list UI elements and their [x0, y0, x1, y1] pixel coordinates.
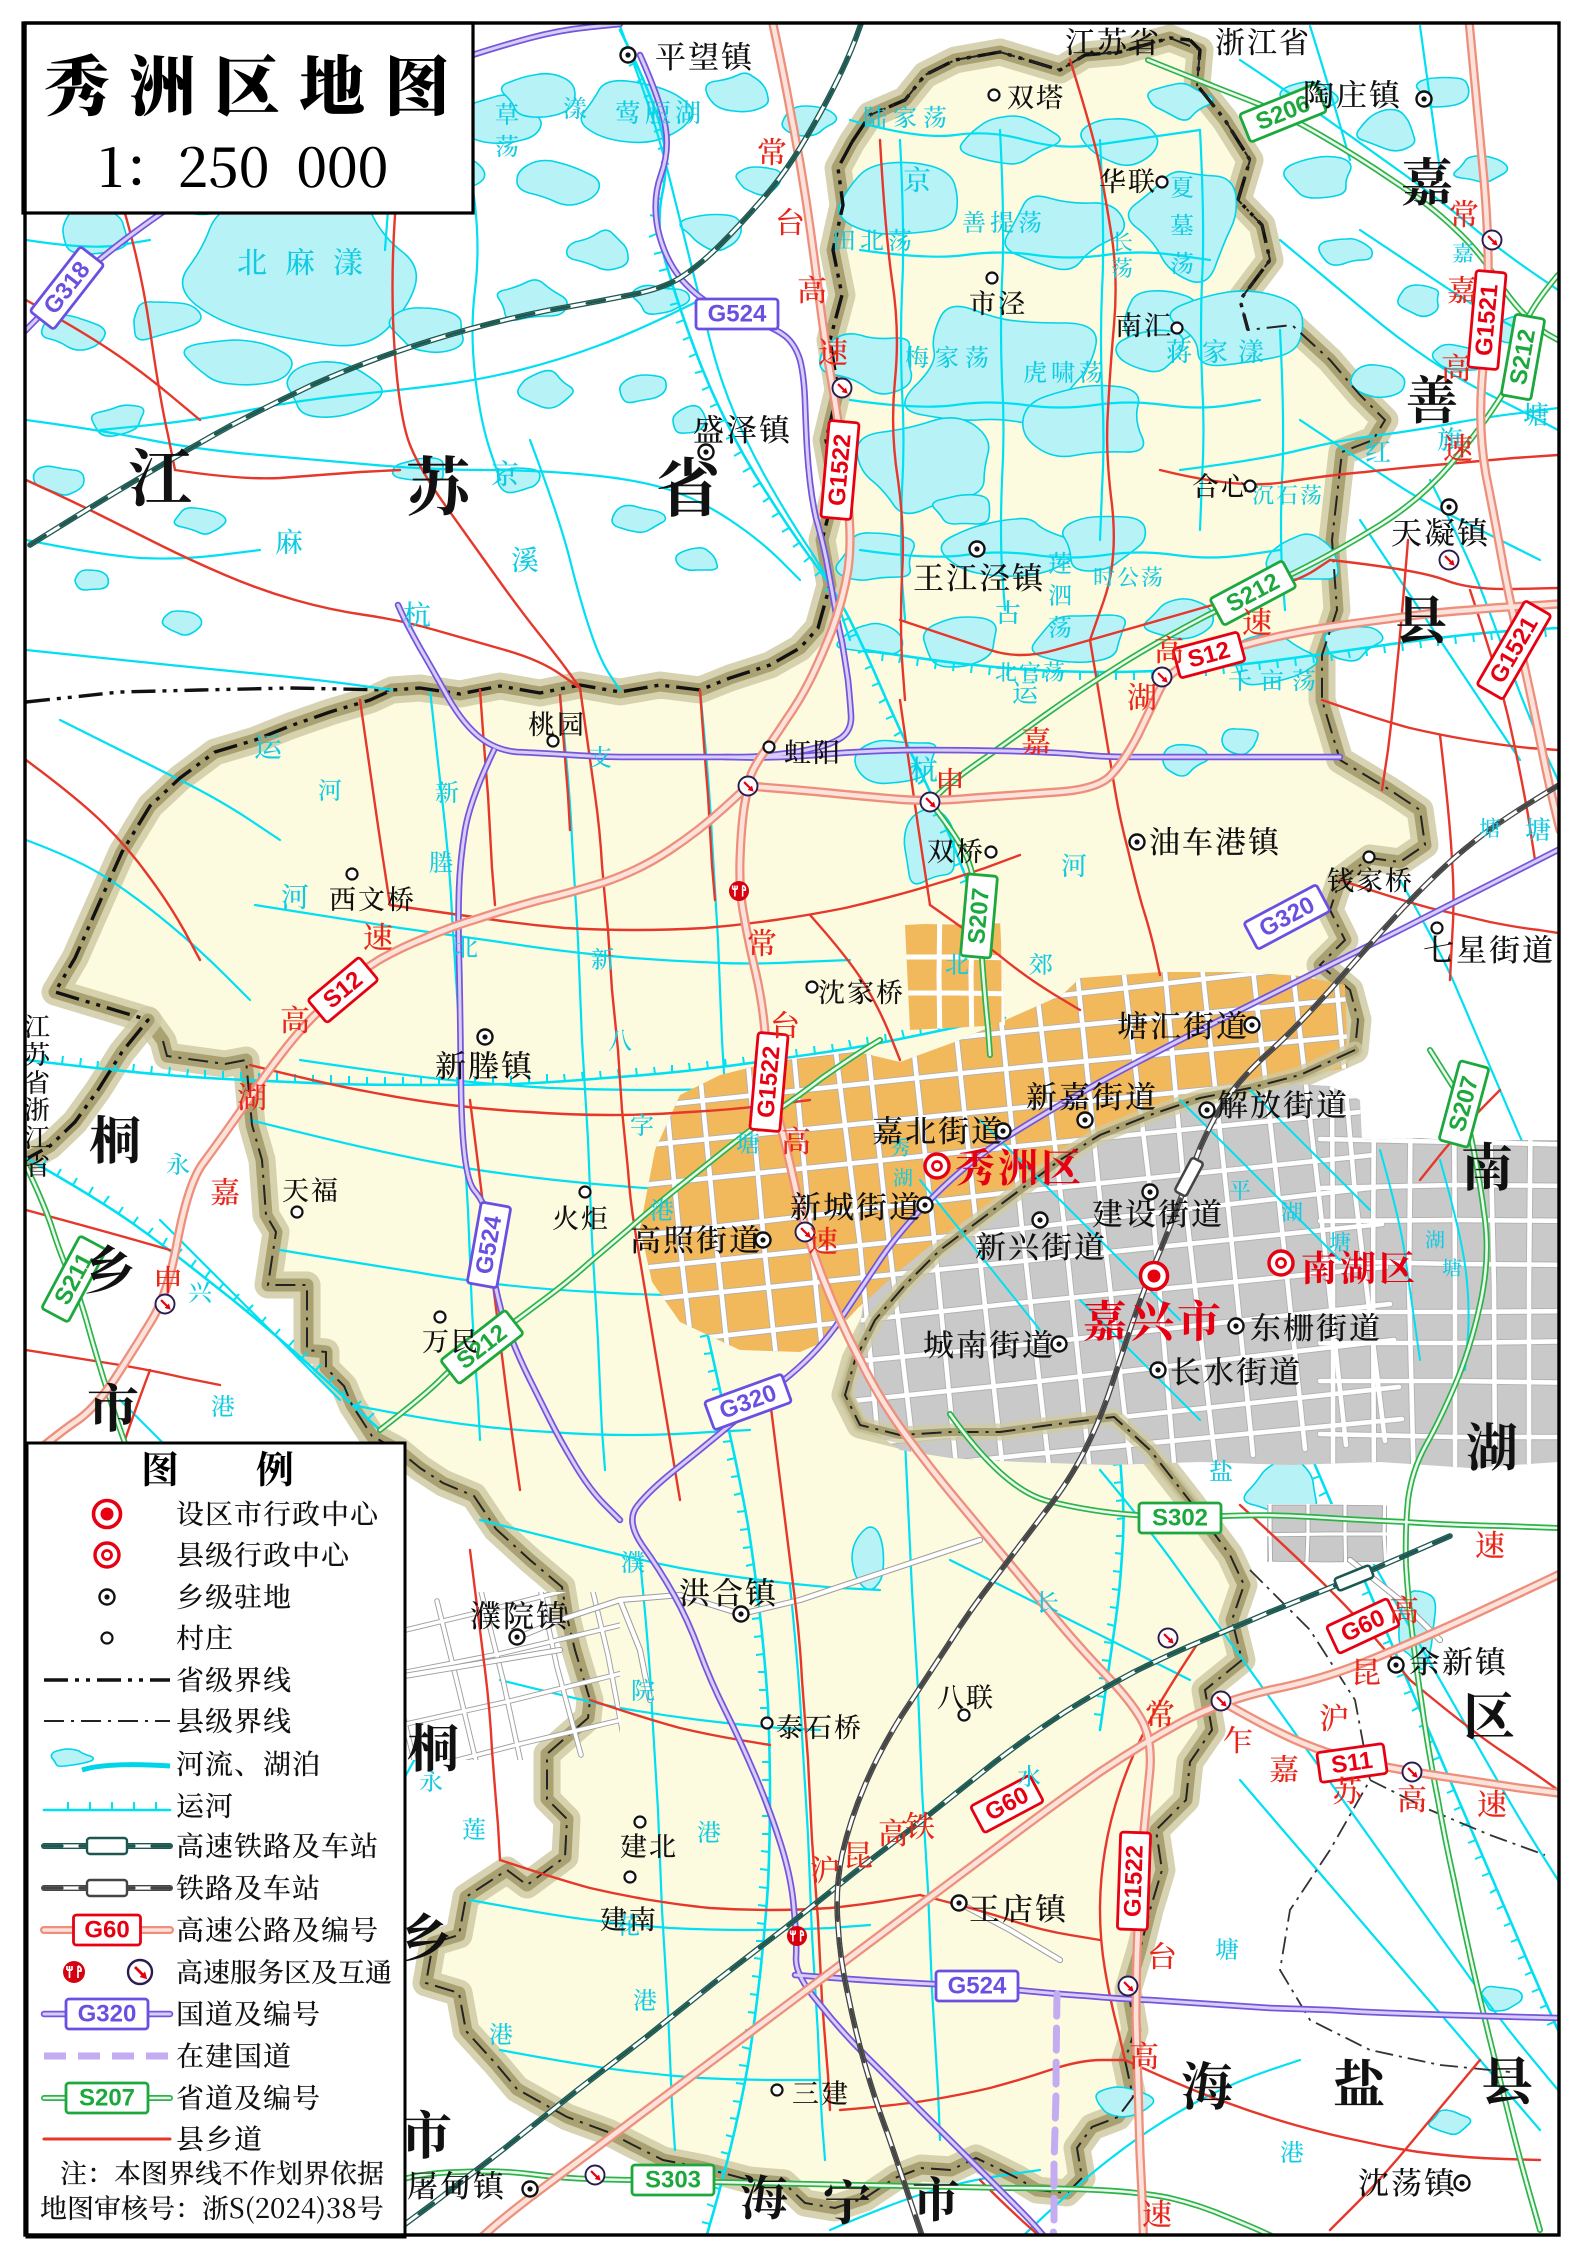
svg-text:S207: S207 [963, 887, 995, 945]
svg-text:S207: S207 [79, 2085, 135, 2112]
svg-text:S11: S11 [1330, 1747, 1375, 1779]
svg-text:G524: G524 [708, 301, 767, 328]
svg-text:G1522: G1522 [1119, 1845, 1148, 1918]
svg-text:G524: G524 [948, 1973, 1007, 2000]
svg-text:S302: S302 [1152, 1505, 1208, 1532]
svg-text:G320: G320 [78, 2001, 137, 2028]
svg-text:S303: S303 [645, 2167, 701, 2194]
svg-text:G60: G60 [84, 1917, 129, 1944]
